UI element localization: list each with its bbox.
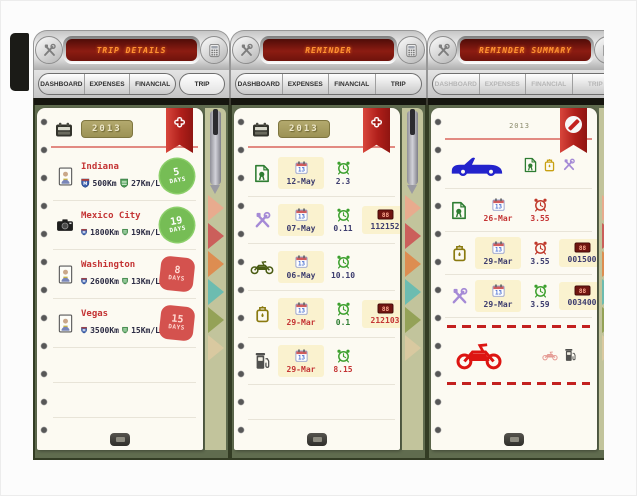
calendar-icon [294,207,309,222]
ruled-line [248,385,395,420]
year-filter[interactable]: 2013 [81,120,133,138]
calculator-button[interactable] [397,36,425,64]
summary-row[interactable]: 29-Mar 3.59 003400 [445,275,592,318]
calendar-icon [491,197,506,212]
calendar-icon [294,160,309,175]
reminder-row[interactable]: 29-Mar 8.15 [248,338,395,385]
service-tools-icon [248,211,276,230]
tab-group: DASHBOARD EXPENSES FINANCIAL TRIP [235,73,422,95]
trip-distance: 3500Km [90,326,119,335]
oil-icon [445,244,473,262]
calendar-icon [252,122,270,137]
screens-strip: TRIP DETAILS DASHBOARD EXPENSES FINANCIA… [33,30,604,460]
days-badge: 8DAYS [158,255,195,292]
fuel-pump-icon [248,352,276,370]
home-button[interactable] [110,433,130,446]
portrait-photo-icon [53,167,77,186]
screen-title: TRIP DETAILS [66,39,197,61]
adjacent-screen-edge [10,33,29,91]
alarm-clock-icon [533,240,548,255]
days-badge: 5DAYS [157,156,196,195]
motorcycle-icon [248,259,276,275]
service-tools-icon [562,158,576,172]
screen-title: REMINDER SUMMARY [460,39,591,61]
reminder-row[interactable]: 06-May 10.10 [248,244,395,291]
calendar-icon [294,348,309,363]
date-cell: 29-Mar [475,237,521,269]
bookmark-tab [405,223,421,249]
trip-name: Washington [81,260,160,270]
alarm-clock-icon [336,160,351,175]
bookmark-tab [208,335,224,361]
date-cell: 29-Mar [475,280,521,312]
page-edge-decor [402,108,423,450]
notebook-page: 2013 [431,108,597,450]
tab-group: DASHBOARD EXPENSES FINANCIAL TRIP [432,73,604,95]
device-chrome: REMINDER SUMMARY [427,30,604,70]
summary-row[interactable]: 29-Mar 3.55 001500 [445,232,592,275]
time-cell: 2.3 [326,157,360,189]
portrait-photo-icon [53,265,77,284]
tab-bar: DASHBOARD EXPENSES FINANCIAL TRIP [230,70,427,98]
calendar-icon [294,301,309,316]
trip-row[interactable]: Indiana 500Km 27Km/L 5DAYS [53,152,196,201]
odometer-cell [362,358,400,364]
tab-bar: DASHBOARD EXPENSES FINANCIAL TRIP [427,70,604,98]
odometer-cell: 112152 [362,206,400,234]
bookmark-tab [602,223,604,249]
excluded-divider [447,382,590,385]
bookmark-tab [602,307,604,333]
trip-name: Vegas [81,309,160,319]
reminder-row[interactable]: 07-May 0.11 112152 [248,197,395,244]
trip-name: Indiana [81,162,160,172]
trip-distance: 1800Km [90,228,119,237]
tab-bar: DASHBOARD EXPENSES FINANCIAL TRIP [33,70,230,98]
tab-financial[interactable]: FINANCIAL [130,74,175,94]
date-cell: 29-Mar [278,345,324,377]
tools-button[interactable] [35,36,63,64]
date-cell: 07-May [278,204,324,236]
alarm-clock-icon [336,207,351,222]
distance-shield-icon [81,323,87,337]
date-cell: 06-May [278,251,324,283]
tab-dashboard[interactable]: DASHBOARD [433,74,480,94]
efficiency-shield-icon [122,274,128,288]
spiral-binding [237,118,245,444]
date-cell: 12-May [278,157,324,189]
ruled-line [53,383,196,418]
bookmark-tab [405,307,421,333]
ruled-line [53,348,196,383]
lcd-bezel: TRIP DETAILS [63,36,200,64]
portrait-photo-icon [53,314,77,333]
lcd-bezel: REMINDER SUMMARY [457,36,594,64]
plus-icon: ✚ [372,114,381,129]
trip-row[interactable]: Mexico City 1800Km 19Km/L 19 [53,201,196,250]
motorcycle-icon [455,340,503,370]
bookmark-tab [208,251,224,277]
bookmark-tab [208,195,224,221]
date-cell: 29-Mar [278,298,324,330]
divider [33,98,230,105]
tab-expenses[interactable]: EXPENSES [283,74,330,94]
bookmark-tab [405,335,421,361]
tab-financial[interactable]: FINANCIAL [526,74,573,94]
bookmark-tab [602,251,604,277]
odometer-cell [559,207,597,213]
pen-icon [407,111,418,185]
alarm-clock-icon [336,254,351,269]
time-cell: 3.55 [523,194,557,226]
reminder-screen: REMINDER DASHBOARD EXPENSES FINANCIAL TR… [230,30,427,460]
tab-trip[interactable]: TRIP [573,74,605,94]
distance-shield-icon [81,176,90,190]
notebook-body: ✚ 2013 12-May [230,105,427,460]
lcd-bezel: REMINDER [260,36,397,64]
alarm-clock-icon [533,197,548,212]
service-tools-icon [445,287,473,306]
spiral-binding [40,118,48,444]
vehicle-summary-row[interactable] [445,142,592,189]
trip-efficiency: 19Km/L [131,228,160,237]
days-badge: 19DAYS [157,205,196,244]
trip-row[interactable]: Vegas 3500Km 15Km/L 15DAYS [53,299,196,348]
spiral-binding [434,118,442,444]
odometer-cell: 003400 [559,282,597,310]
odometer-cell: 212103 [362,300,400,328]
calculator-button[interactable] [200,36,228,64]
bookmark-tab [208,307,224,333]
odometer-icon [377,303,394,314]
efficiency-shield-icon [122,323,128,337]
bookmark-tab [405,279,421,305]
home-button[interactable] [307,433,327,446]
time-cell: 0.1 [326,298,360,330]
excluded-vehicle-row[interactable] [445,335,592,375]
trip-distance: 500Km [93,179,117,188]
notebook-page: ✚ 2013 12-May [234,108,400,450]
odometer-icon [574,242,591,253]
date-cell: 26-Mar [475,194,521,226]
reminder-row[interactable]: 12-May 2.3 [248,150,395,197]
no-entry-icon [561,112,585,136]
tab-expenses[interactable]: EXPENSES [480,74,527,94]
calendar-icon [491,283,506,298]
certificate-icon [248,164,276,183]
device-chrome: REMINDER [230,30,427,70]
tools-button[interactable] [429,36,457,64]
oil-icon [248,305,276,323]
camera-icon [53,218,77,232]
plus-icon: ✚ [175,114,184,129]
distance-shield-icon [81,274,87,288]
trip-name: Mexico City [81,211,160,221]
tab-expenses[interactable]: EXPENSES [85,74,131,94]
tab-trip-active[interactable]: TRIP [179,73,225,95]
trip-row[interactable]: Washington 2600Km 13Km/L 8DA [53,250,196,299]
certificate-icon [445,201,473,220]
efficiency-shield-icon [120,176,129,190]
fuel-pump-icon [564,348,576,362]
time-cell: 0.11 [326,204,360,236]
alarm-clock-icon [533,283,548,298]
time-cell: 3.55 [523,237,557,269]
alarm-clock-icon [336,301,351,316]
notebook-body: ✚ 2013 Indiana [33,105,230,460]
calendar-icon [491,240,506,255]
divider [230,98,427,105]
bookmark-tab [602,335,604,361]
distance-shield-icon [81,225,87,239]
calculator-button[interactable] [594,36,604,64]
efficiency-shield-icon [122,225,128,239]
reminder-row[interactable]: 29-Mar 0.1 212103 [248,291,395,338]
scooter-icon [542,350,558,361]
tab-dashboard[interactable]: DASHBOARD [39,74,85,94]
odometer-cell [362,264,400,270]
tab-trip[interactable]: TRIP [376,74,422,94]
bookmark-tab [208,279,224,305]
odometer-icon [377,209,394,220]
trip-efficiency: 27Km/L [131,179,160,188]
calendar-icon [55,122,73,137]
tab-dashboard[interactable]: DASHBOARD [236,74,283,94]
bookmark-tab [602,195,604,221]
trip-details-screen: TRIP DETAILS DASHBOARD EXPENSES FINANCIA… [33,30,230,460]
car-icon [449,154,505,177]
pen-icon [210,111,221,185]
trip-efficiency: 15Km/L [131,326,160,335]
device-chrome: TRIP DETAILS [33,30,230,70]
time-cell: 3.59 [523,280,557,312]
screen-title: REMINDER [263,39,394,61]
home-button[interactable] [504,433,524,446]
divider [427,98,604,105]
alarm-clock-icon [336,348,351,363]
reminder-summary-screen: REMINDER SUMMARY DASHBOARD EXPENSES FINA… [427,30,604,460]
bookmark-tab [405,251,421,277]
notebook-body: 2013 [427,105,604,460]
page-edge-decor [599,108,604,450]
odometer-cell: 001500 [559,239,597,267]
odometer-icon [574,285,591,296]
odometer-cell [362,170,400,176]
certificate-icon [524,157,537,173]
trip-distance: 2600Km [90,277,119,286]
time-cell: 10.10 [326,251,360,283]
time-cell: 8.15 [326,345,360,377]
year-filter[interactable]: 2013 [278,120,330,138]
summary-row[interactable]: 26-Mar 3.55 [445,189,592,232]
bookmark-tab [405,195,421,221]
calendar-icon [294,254,309,269]
screenshot-canvas: TRIP DETAILS DASHBOARD EXPENSES FINANCIA… [0,0,637,496]
bookmark-tab [208,223,224,249]
tab-financial[interactable]: FINANCIAL [329,74,376,94]
notebook-page: ✚ 2013 Indiana [37,108,203,450]
oil-icon [543,158,556,172]
tab-group: DASHBOARD EXPENSES FINANCIAL [38,73,176,95]
excluded-divider [447,325,590,328]
page-edge-decor [205,108,226,450]
trip-efficiency: 13Km/L [131,277,160,286]
bookmark-tab [602,279,604,305]
tools-button[interactable] [232,36,260,64]
days-badge: 15DAYS [158,304,195,341]
